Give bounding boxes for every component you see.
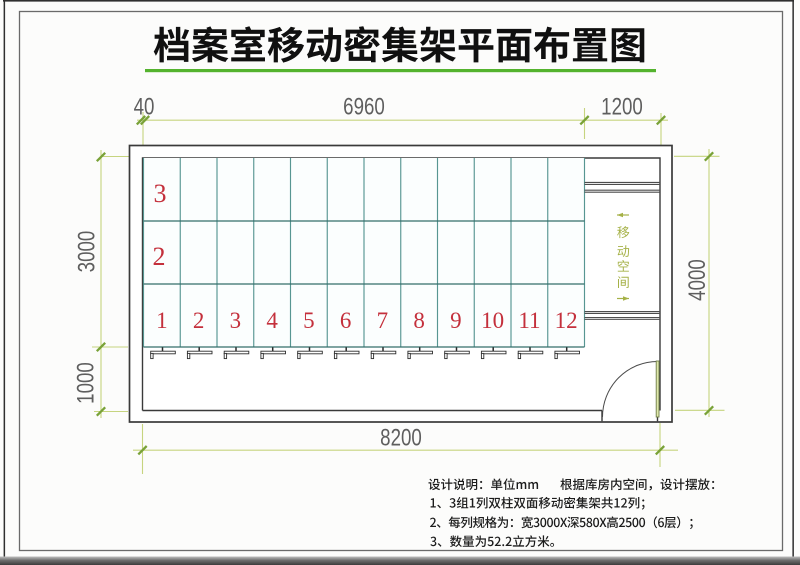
svg-text:8: 8 — [413, 308, 425, 333]
svg-text:6960: 6960 — [343, 93, 385, 120]
svg-text:1: 1 — [156, 308, 168, 333]
svg-text:1200: 1200 — [601, 93, 643, 120]
svg-text:3: 3 — [230, 308, 242, 333]
svg-text:3: 3 — [154, 179, 167, 208]
svg-text:9: 9 — [450, 308, 462, 333]
svg-text:8200: 8200 — [380, 424, 422, 451]
svg-text:7: 7 — [377, 308, 389, 333]
svg-text:6: 6 — [340, 308, 352, 333]
svg-text:11: 11 — [518, 308, 540, 333]
svg-text:2: 2 — [153, 242, 166, 271]
svg-text:4000: 4000 — [684, 259, 711, 301]
svg-text:10: 10 — [481, 308, 504, 333]
svg-text:12: 12 — [555, 308, 578, 333]
svg-text:40: 40 — [134, 93, 155, 120]
svg-text:5: 5 — [303, 308, 315, 333]
svg-text:4: 4 — [266, 308, 278, 333]
svg-text:1000: 1000 — [72, 362, 99, 404]
svg-text:3000: 3000 — [73, 231, 100, 273]
svg-text:2: 2 — [193, 308, 205, 333]
